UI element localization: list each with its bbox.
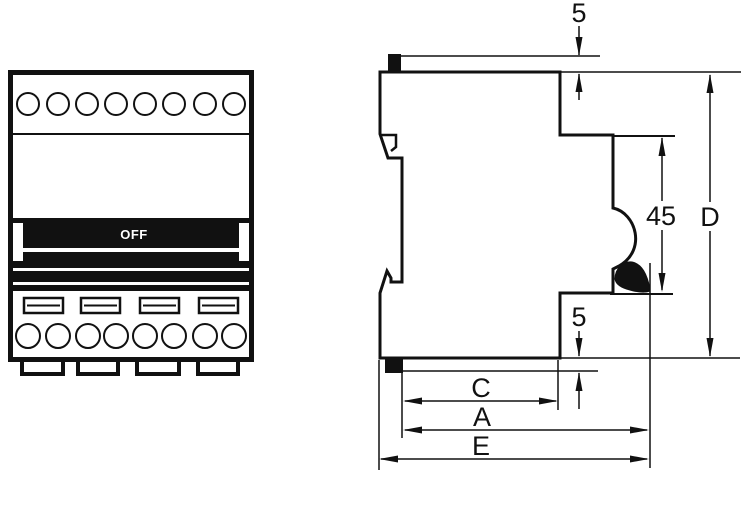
dim-depth-a: A — [403, 402, 649, 434]
toggle-band: OFF — [13, 218, 249, 291]
foot — [78, 362, 118, 374]
foot — [22, 362, 63, 374]
foot — [198, 362, 238, 374]
dim-label-a: A — [473, 402, 491, 432]
dim-label-c: C — [471, 373, 491, 403]
toggle-handle-left-tab — [13, 223, 23, 261]
dim-label-d: D — [700, 202, 720, 232]
front-stripe-1 — [13, 271, 249, 282]
breaker-dimension-drawing: OFF — [0, 0, 745, 516]
foot — [137, 362, 179, 374]
toggle-band-black — [13, 218, 249, 268]
toggle-handle-right-tab — [239, 223, 249, 261]
front-view: OFF — [11, 73, 252, 375]
dim-depth-e: E — [379, 431, 649, 463]
dim-top-clip-protrusion: 5 — [571, 0, 586, 100]
dim-label-top-5: 5 — [571, 0, 586, 28]
top-clip-protrusion — [388, 54, 401, 72]
mounting-feet — [22, 362, 238, 374]
toggle-handle-edge — [23, 248, 239, 252]
dim-label-e: E — [472, 431, 490, 461]
dim-label-bottom-5: 5 — [571, 302, 586, 332]
dim-depth-c: C — [403, 373, 558, 405]
dim-total-height: D — [700, 74, 720, 357]
toggle-state-label: OFF — [120, 227, 148, 242]
terminal-clamp-marker — [615, 262, 650, 292]
drawing-svg: OFF — [0, 0, 745, 516]
breaker-case-outline — [11, 73, 252, 360]
bottom-clip-foot — [385, 358, 403, 373]
front-stripe-2 — [13, 285, 249, 291]
dim-label-45: 45 — [646, 201, 676, 231]
side-view — [380, 54, 650, 373]
dim-bottom-clip-protrusion: 5 — [571, 302, 586, 409]
side-profile-outline — [380, 72, 636, 358]
